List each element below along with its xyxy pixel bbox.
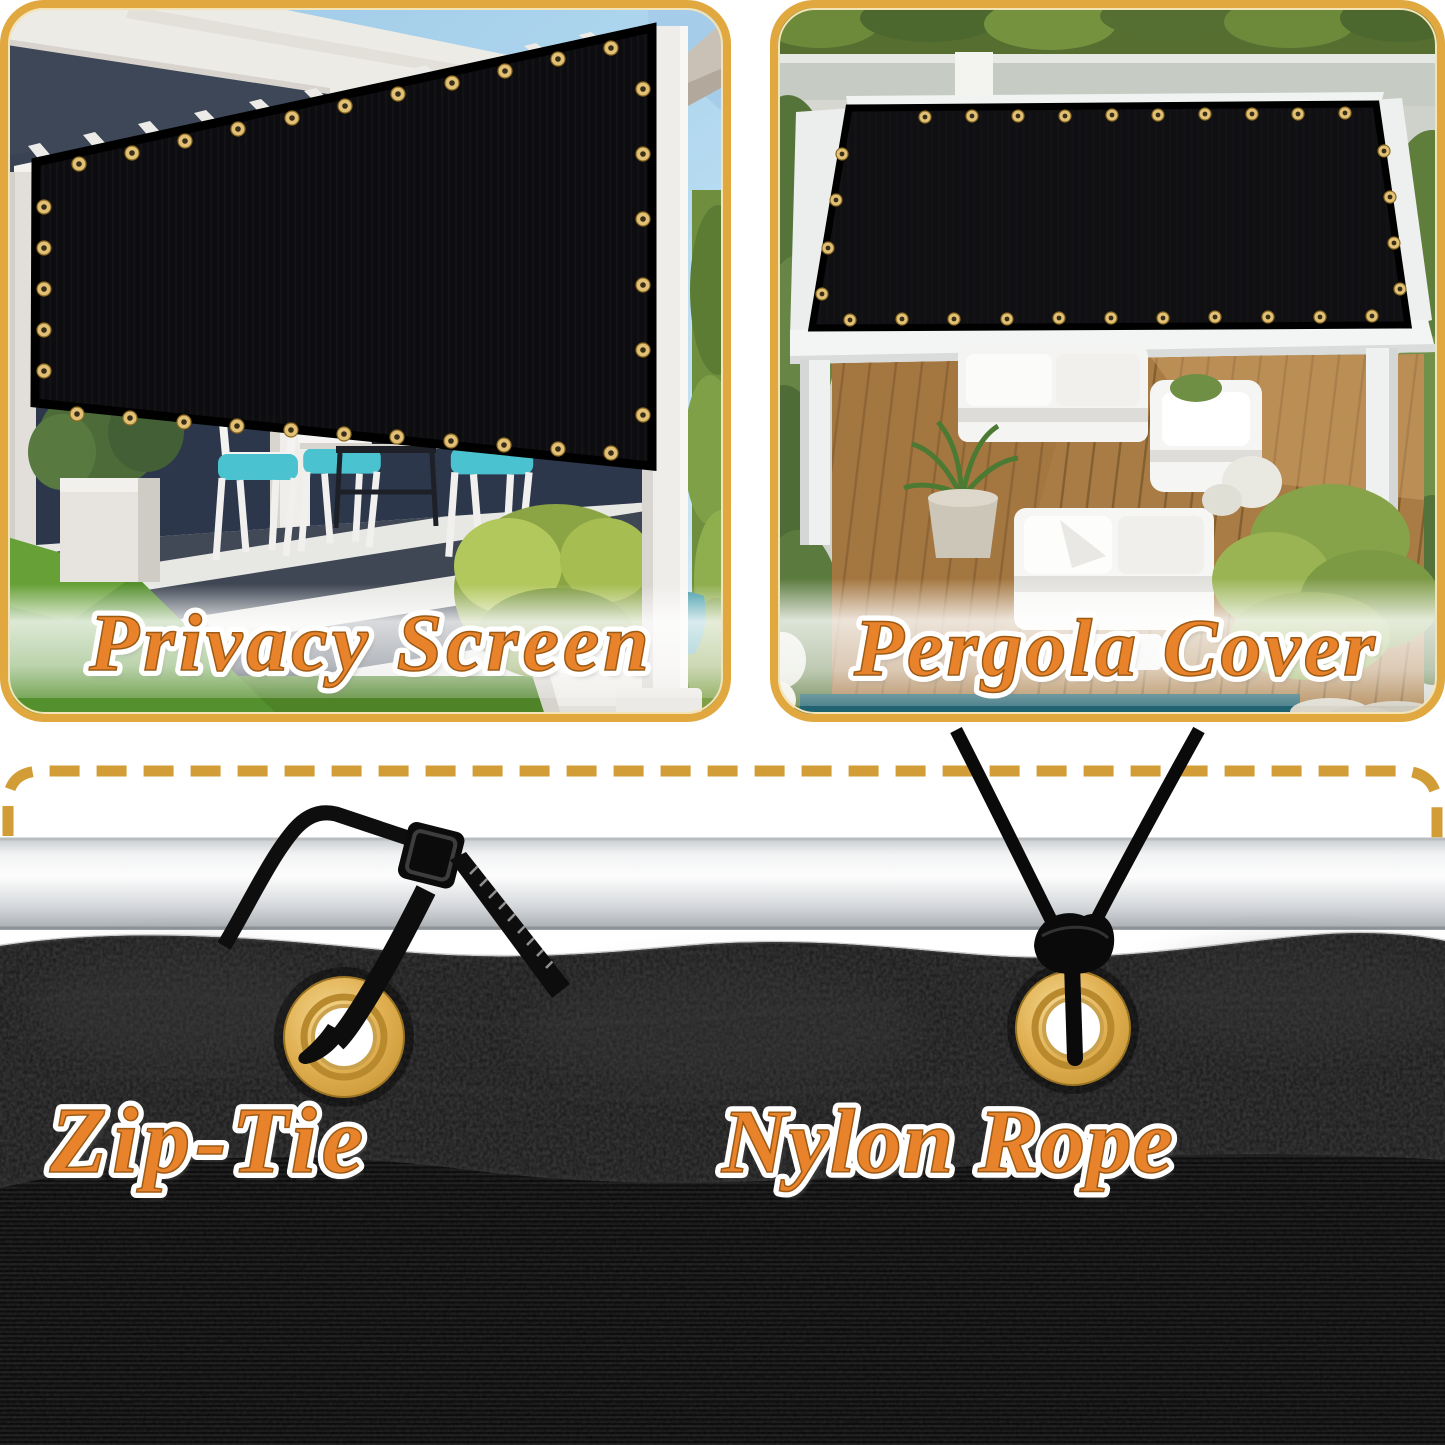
svg-text:Zip-Tie: Zip-Tie xyxy=(49,1089,369,1193)
svg-text:Privacy Screen: Privacy Screen xyxy=(88,597,653,688)
svg-text:Pergola Cover: Pergola Cover xyxy=(853,602,1378,693)
svg-text:Nylon Rope: Nylon Rope xyxy=(721,1091,1174,1192)
